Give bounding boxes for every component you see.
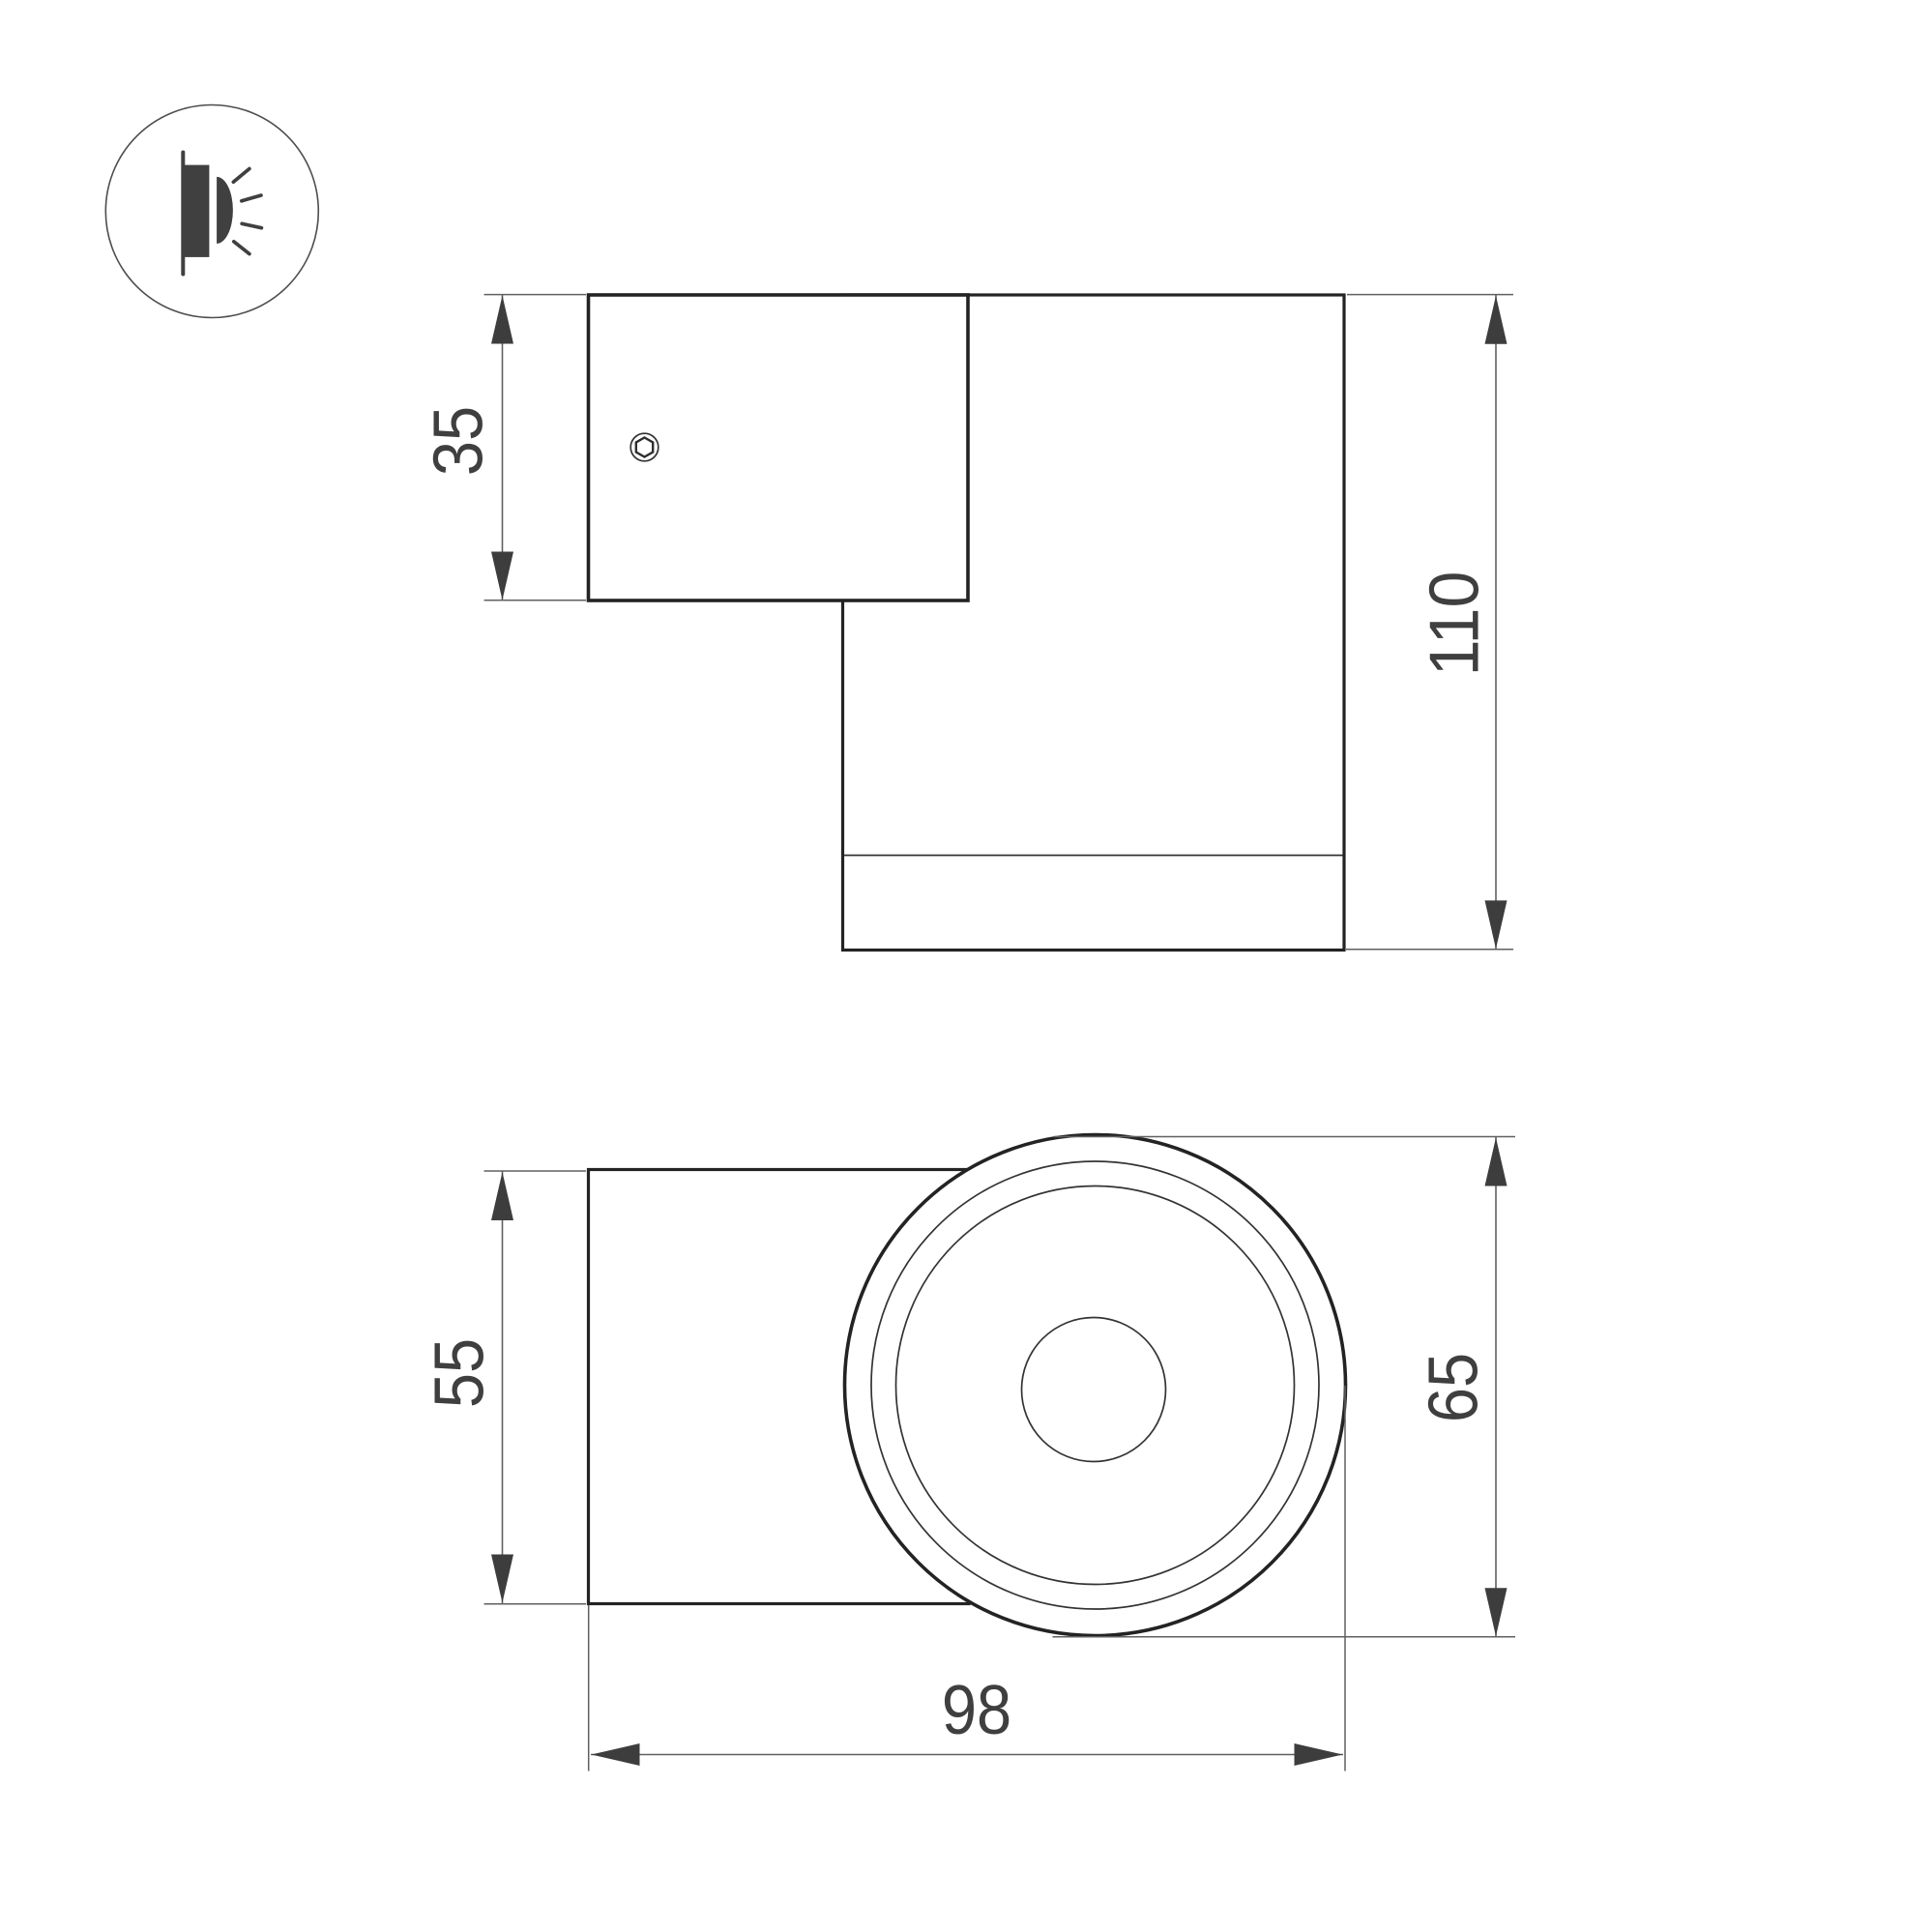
svg-text:65: 65 [1414, 1353, 1492, 1422]
svg-text:110: 110 [1415, 571, 1494, 677]
svg-text:98: 98 [942, 1671, 1011, 1749]
svg-text:35: 35 [419, 406, 497, 476]
svg-text:55: 55 [420, 1338, 498, 1408]
